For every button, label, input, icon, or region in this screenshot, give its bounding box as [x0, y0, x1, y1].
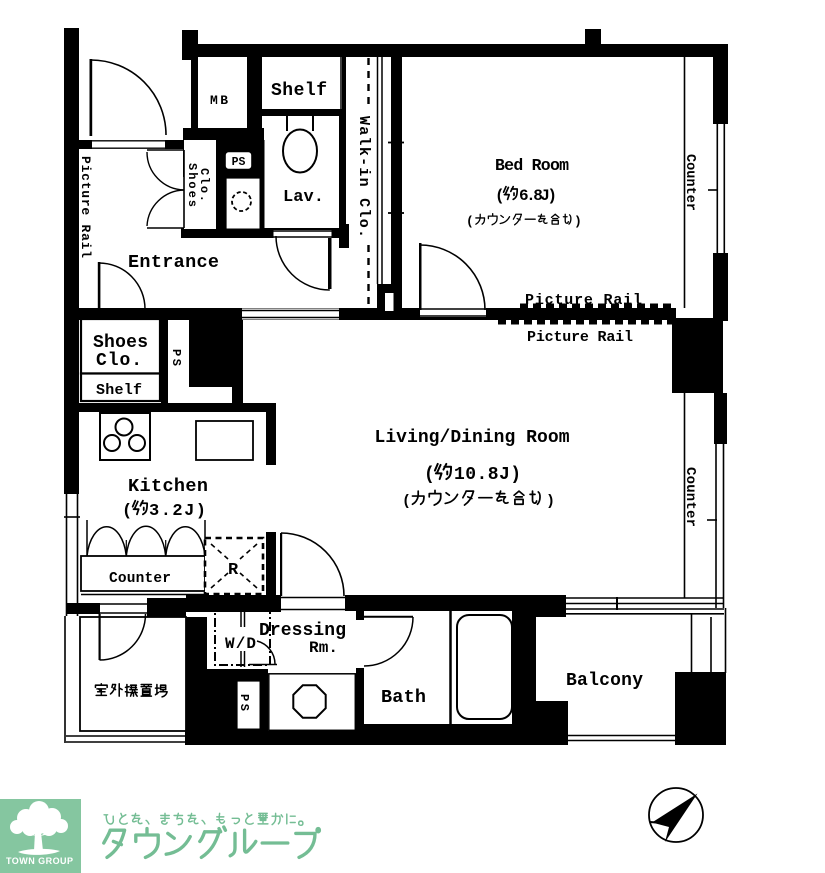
svg-text:TOWN GROUP: TOWN GROUP [6, 856, 74, 866]
svg-text:Picture Rail: Picture Rail [525, 292, 642, 309]
svg-text:R: R [228, 561, 239, 580]
svg-text:Lav.: Lav. [283, 188, 324, 207]
svg-text:(: ( [466, 214, 474, 229]
svg-text:3.2J): 3.2J) [149, 502, 206, 521]
svg-text:Bath: Bath [381, 687, 426, 708]
svg-text:Counter: Counter [682, 154, 697, 211]
svg-text:Shoes: Shoes [185, 163, 199, 207]
svg-text:): ) [546, 493, 555, 510]
svg-text:Living/Dining Room: Living/Dining Room [375, 428, 570, 448]
svg-text:10.8J): 10.8J) [454, 465, 521, 485]
svg-text:W/D: W/D [225, 635, 256, 653]
svg-text:(: ( [424, 465, 435, 485]
svg-text:Walk-in Clo.: Walk-in Clo. [355, 116, 372, 238]
svg-text:): ) [574, 214, 582, 229]
svg-text:Kitchen: Kitchen [128, 476, 208, 497]
svg-text:Balcony: Balcony [566, 671, 643, 691]
svg-text:Picture Rail: Picture Rail [78, 156, 93, 258]
svg-text:Dressing: Dressing [259, 621, 346, 641]
svg-text:Entrance: Entrance [128, 252, 219, 273]
svg-text:Shoes: Shoes [93, 333, 148, 353]
svg-text:(: ( [122, 502, 132, 521]
svg-text:6.8J): 6.8J) [519, 187, 557, 205]
svg-text:Clo.: Clo. [197, 168, 211, 202]
svg-text:Bed Room: Bed Room [495, 156, 569, 175]
svg-text:Shelf: Shelf [96, 382, 142, 399]
svg-text:Counter: Counter [109, 571, 171, 587]
svg-text:(: ( [402, 493, 411, 510]
svg-text:Shelf: Shelf [271, 81, 327, 101]
svg-text:(: ( [495, 187, 505, 205]
svg-text:Picture Rail: Picture Rail [527, 329, 633, 346]
svg-text:Clo.: Clo. [96, 351, 142, 371]
svg-text:Counter: Counter [682, 467, 698, 527]
svg-text:PS: PS [232, 156, 246, 169]
svg-text:Rm.: Rm. [309, 639, 338, 657]
